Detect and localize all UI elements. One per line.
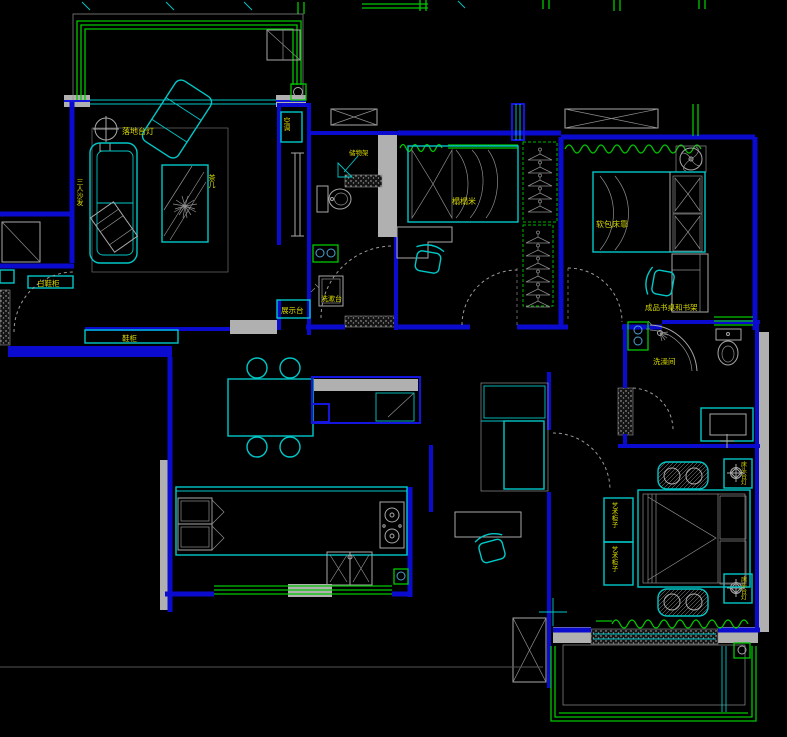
- office-chair-icon: [412, 243, 444, 274]
- counter: [176, 487, 407, 555]
- sink-icon: [327, 552, 372, 585]
- dining-chair: [247, 358, 267, 378]
- nightstand-lamp: [724, 459, 752, 488]
- balcony-top-left: [73, 14, 306, 104]
- wardrobes: [523, 142, 557, 307]
- label-bedside-lamp-2: 床头台灯: [740, 575, 747, 601]
- label-shoe-cabinet: 鞋柜: [122, 333, 137, 343]
- floor-lamp-icon: [93, 116, 119, 151]
- master-bathroom: [628, 317, 753, 448]
- double-bed: [593, 172, 705, 252]
- corner-shelf: [338, 156, 358, 177]
- label-storage-rack: 储物架: [349, 148, 369, 157]
- dining-chair: [280, 358, 300, 378]
- label-floor-lamp: 落地台灯: [122, 126, 154, 136]
- hall-desk: [455, 512, 521, 564]
- pipe-lines: [693, 104, 698, 136]
- fridge-icon: [178, 498, 224, 550]
- label-wash-counter: 洗漱台: [321, 294, 342, 303]
- coffee-table: [162, 165, 208, 242]
- dining-chair: [247, 437, 267, 457]
- office-chair-icon: [474, 531, 508, 564]
- art-cabinet-box: [604, 542, 633, 585]
- toilet-icon: [716, 329, 741, 365]
- wall-fills: [8, 95, 769, 643]
- master-bed: [638, 490, 750, 587]
- label-tatami: 榻榻米: [452, 196, 476, 206]
- bedroom-2: [565, 145, 708, 312]
- nightstand-lamp: [724, 574, 752, 603]
- label-ac-unit: 空调: [283, 116, 291, 132]
- hatched-thresholds: [0, 175, 718, 644]
- label-desk-bookshelf: 成品书桌和书架: [645, 302, 698, 312]
- master-bath-door-arc: [633, 388, 673, 430]
- balcony-bottom: [551, 643, 756, 721]
- dining-chair: [280, 437, 300, 457]
- entry: [0, 222, 178, 343]
- curtain: [596, 620, 748, 628]
- tv-panel: [295, 153, 300, 236]
- sofa: [90, 143, 137, 263]
- art-cabinet-box: [604, 498, 633, 542]
- dining-area: [228, 358, 420, 457]
- label-art-cabinet-1: 艺术柜子: [610, 502, 618, 529]
- kitchen: [176, 487, 408, 594]
- label-display-stand: 展示台: [281, 305, 304, 315]
- desk: [397, 227, 452, 258]
- floor-plan-canvas: 落地台灯 三人沙发 茶几 空调 储物架 榻榻米 软包床靠 成品书桌和书架 白鞋柜…: [0, 0, 787, 737]
- armchair: [140, 77, 214, 160]
- dining-table: [228, 379, 313, 436]
- storage-room: [481, 383, 548, 491]
- washbasin-icon: [313, 245, 338, 262]
- bedroom2-door-arc: [568, 268, 622, 322]
- ceiling-fan-icon: [676, 146, 706, 172]
- dimension-ticks: [82, 0, 705, 14]
- recliner-cushion: [90, 202, 137, 252]
- label-coffee-table: 茶几: [208, 173, 216, 189]
- plant-icon: [173, 196, 197, 218]
- flue-shaft: [513, 618, 546, 682]
- label-shower-room: 洗澡间: [653, 356, 676, 366]
- tatami-bed: [408, 146, 518, 222]
- office-chair-icon: [644, 266, 675, 298]
- label-bedside-lamp-1: 床头台灯: [740, 460, 747, 486]
- floor-drain-icon: [394, 569, 408, 584]
- label-bed-headboard: 软包床靠: [596, 219, 628, 229]
- label-sofa: 三人沙发: [76, 178, 84, 207]
- stove-icon: [380, 502, 404, 548]
- toilet-icon: [317, 186, 351, 212]
- bench: [658, 462, 708, 489]
- label-art-cabinet-2: 艺术柜子: [610, 546, 618, 573]
- bar-counter: [312, 377, 420, 423]
- survey-cross: [539, 598, 567, 626]
- master-bedroom: [596, 459, 752, 628]
- tatami-room: [397, 145, 518, 275]
- vanity: [701, 408, 753, 448]
- floor-plan-svg: 落地台灯 三人沙发 茶几 空调 储物架 榻榻米 软包床靠 成品书桌和书架 白鞋柜…: [0, 0, 787, 737]
- bench: [658, 589, 708, 616]
- label-shoe-cabinet-small: 白鞋柜: [37, 278, 60, 288]
- master-bedroom-door-arc: [553, 433, 610, 490]
- tatami-door-arc: [462, 270, 517, 325]
